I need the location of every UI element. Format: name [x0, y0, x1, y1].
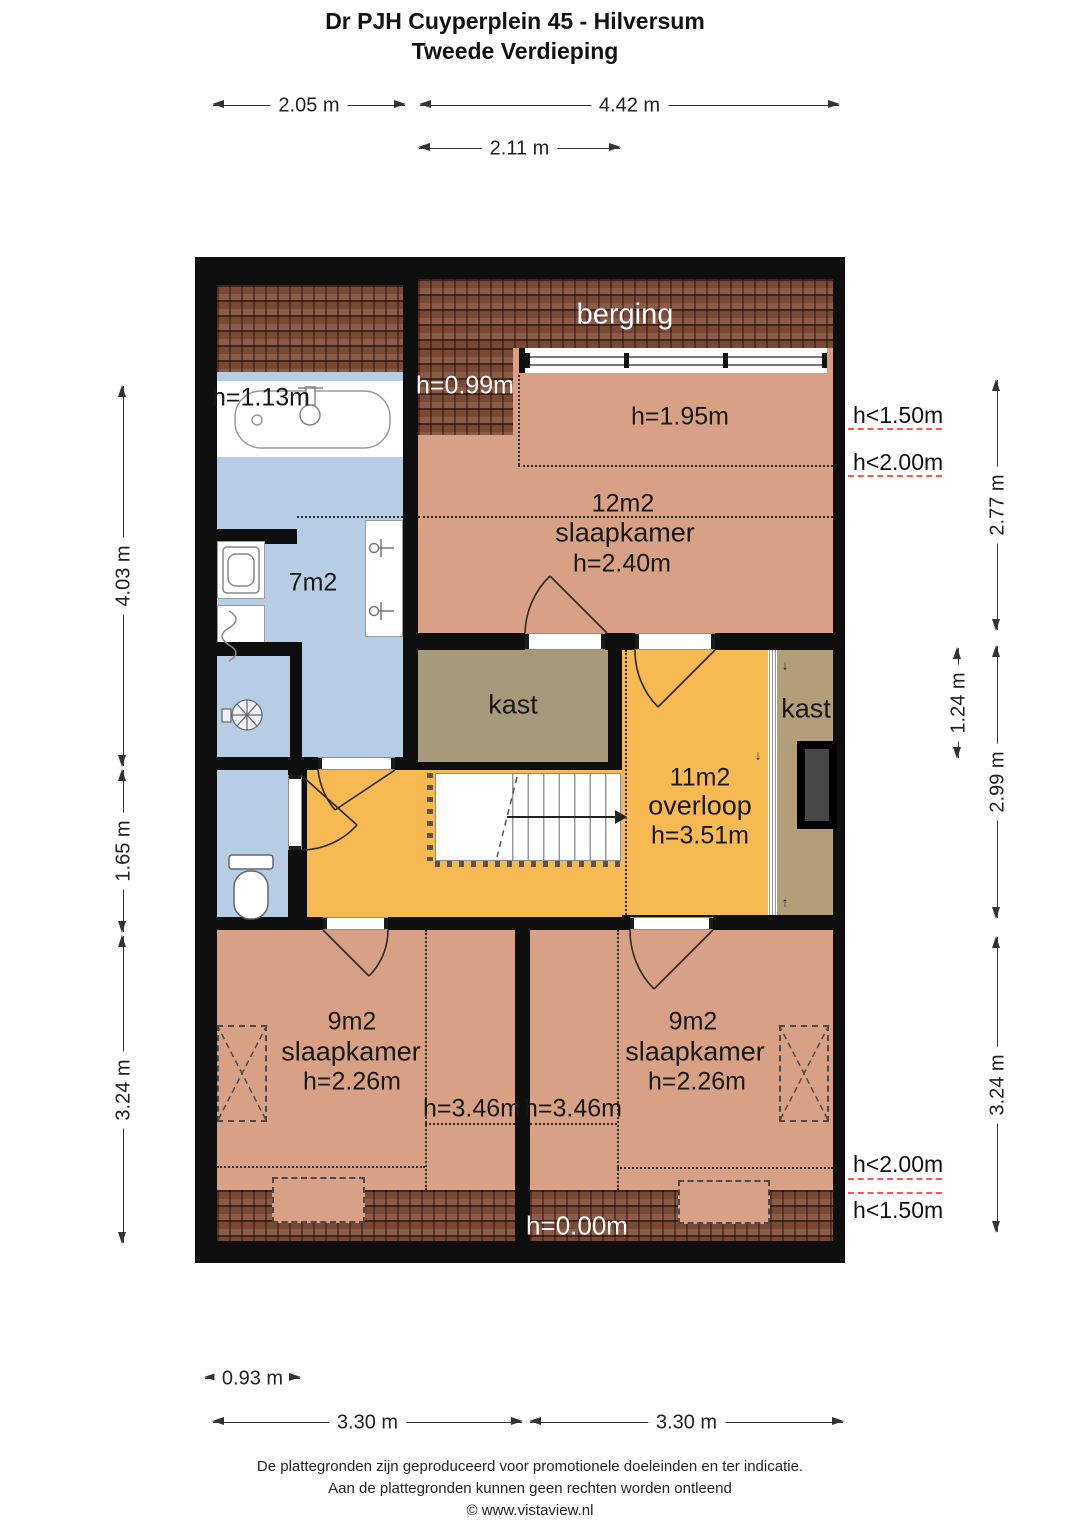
height-label-bathtub: h=1.13m [212, 384, 310, 413]
dim-right-3: 2.99 m [997, 646, 998, 918]
stairs-walkline [497, 777, 627, 857]
title-floor: Tweede Verdieping [0, 36, 1030, 66]
room-label-bedroom-left: slaapkamer [281, 1037, 421, 1068]
height-note-bottom-2: h<1.50m [853, 1197, 943, 1224]
height-note-top-1: h<1.50m [853, 402, 943, 429]
red-dash-line [848, 1192, 942, 1194]
arrow-up-glyph: ↑ [782, 895, 789, 910]
floorplan-drawing: berging h=0.99m h=1.95m 12m2 slaapkamer … [195, 257, 845, 1263]
room-label-closet-left: kast [488, 690, 538, 721]
footer-line-2: Aan de plattegronden kunnen geen rechten… [0, 1478, 1060, 1500]
dim-right-2: 1.24 m [958, 648, 959, 758]
room-label-bedroom-right: slaapkamer [625, 1037, 765, 1068]
dim-bottom-1: 0.93 m [205, 1378, 300, 1379]
room-height-bedroom-right: h=2.26m [648, 1068, 746, 1097]
room-label-landing: overloop [648, 791, 752, 822]
sink-taps-icon [370, 539, 395, 620]
page-title: Dr PJH Cuyperplein 45 - Hilversum Tweede… [0, 6, 1030, 66]
room-area-bedroom-large: 12m2 [592, 490, 655, 519]
height-note-top-2: h<2.00m [853, 449, 943, 476]
room-label-berging: berging [577, 299, 674, 332]
dim-top-3: 2.11 m [419, 148, 620, 149]
dim-label: 1.24 m [948, 664, 971, 741]
height-label-bed-left: h=3.46m [423, 1095, 521, 1124]
room-area-bedroom-right: 9m2 [669, 1008, 718, 1037]
height-note-bottom-1: h<2.00m [853, 1151, 943, 1178]
height-label-bed-right: h=3.46m [524, 1095, 622, 1124]
height-label-zone: h=1.95m [631, 403, 729, 432]
room-label-closet-right: kast [781, 694, 831, 725]
room-height-landing: h=3.51m [651, 822, 749, 851]
door-swing-arcs [301, 576, 715, 989]
toilet-icon [229, 855, 273, 919]
dim-label: 2.77 m [987, 466, 1010, 543]
red-dash-line [848, 428, 942, 430]
title-address: Dr PJH Cuyperplein 45 - Hilversum [0, 6, 1030, 36]
room-height-bedroom-large: h=2.40m [573, 550, 671, 579]
dim-top-2: 4.42 m [420, 105, 839, 106]
arrow-down-glyph: ↓ [782, 658, 789, 673]
dim-label: 1.65 m [113, 812, 136, 889]
dim-label: 4.42 m [591, 95, 668, 118]
dim-left-3: 3.24 m [123, 936, 124, 1243]
footer-line-1: De plattegronden zijn geproduceerd voor … [0, 1456, 1060, 1478]
dim-label: 2.05 m [270, 95, 347, 118]
dim-label: 3.30 m [329, 1412, 406, 1435]
dim-label: 2.99 m [987, 743, 1010, 820]
dim-right-4: 3.24 m [997, 937, 998, 1232]
dim-label: 2.11 m [482, 138, 558, 161]
dim-label: 4.03 m [113, 537, 136, 614]
floorplan-page: Dr PJH Cuyperplein 45 - Hilversum Tweede… [0, 0, 1080, 1527]
dim-label: 3.24 m [987, 1046, 1010, 1123]
dim-label: 3.24 m [113, 1051, 136, 1128]
room-area-landing: 11m2 [670, 764, 731, 793]
dim-bottom-3: 3.30 m [530, 1422, 843, 1423]
dim-bottom-2: 3.30 m [213, 1422, 522, 1423]
room-area-bathroom: 7m2 [289, 569, 338, 598]
fan-icon [222, 700, 262, 730]
room-area-bedroom-left: 9m2 [328, 1008, 377, 1037]
dim-right-1: 2.77 m [997, 380, 998, 630]
red-dash-line [848, 1178, 942, 1180]
height-label-roof-patch: h=0.99m [416, 372, 514, 401]
dim-left-1: 4.03 m [123, 386, 124, 766]
red-dash-line [848, 475, 942, 477]
arrow-down-glyph: ↓ [755, 748, 762, 763]
curtain-icon [222, 611, 236, 661]
washer-drum-icon [223, 547, 259, 593]
dim-left-2: 1.65 m [123, 770, 124, 932]
room-height-bedroom-left: h=2.26m [303, 1068, 401, 1097]
room-label-bedroom-large: slaapkamer [555, 518, 695, 549]
footer: De plattegronden zijn geproduceerd voor … [0, 1456, 1060, 1522]
height-label-roof-zero: h=0.00m [526, 1211, 628, 1242]
footer-copyright: © www.vistaview.nl [0, 1500, 1060, 1522]
dim-label: 0.93 m [214, 1368, 291, 1391]
dim-label: 3.30 m [648, 1412, 725, 1435]
dim-top-1: 2.05 m [213, 105, 405, 106]
